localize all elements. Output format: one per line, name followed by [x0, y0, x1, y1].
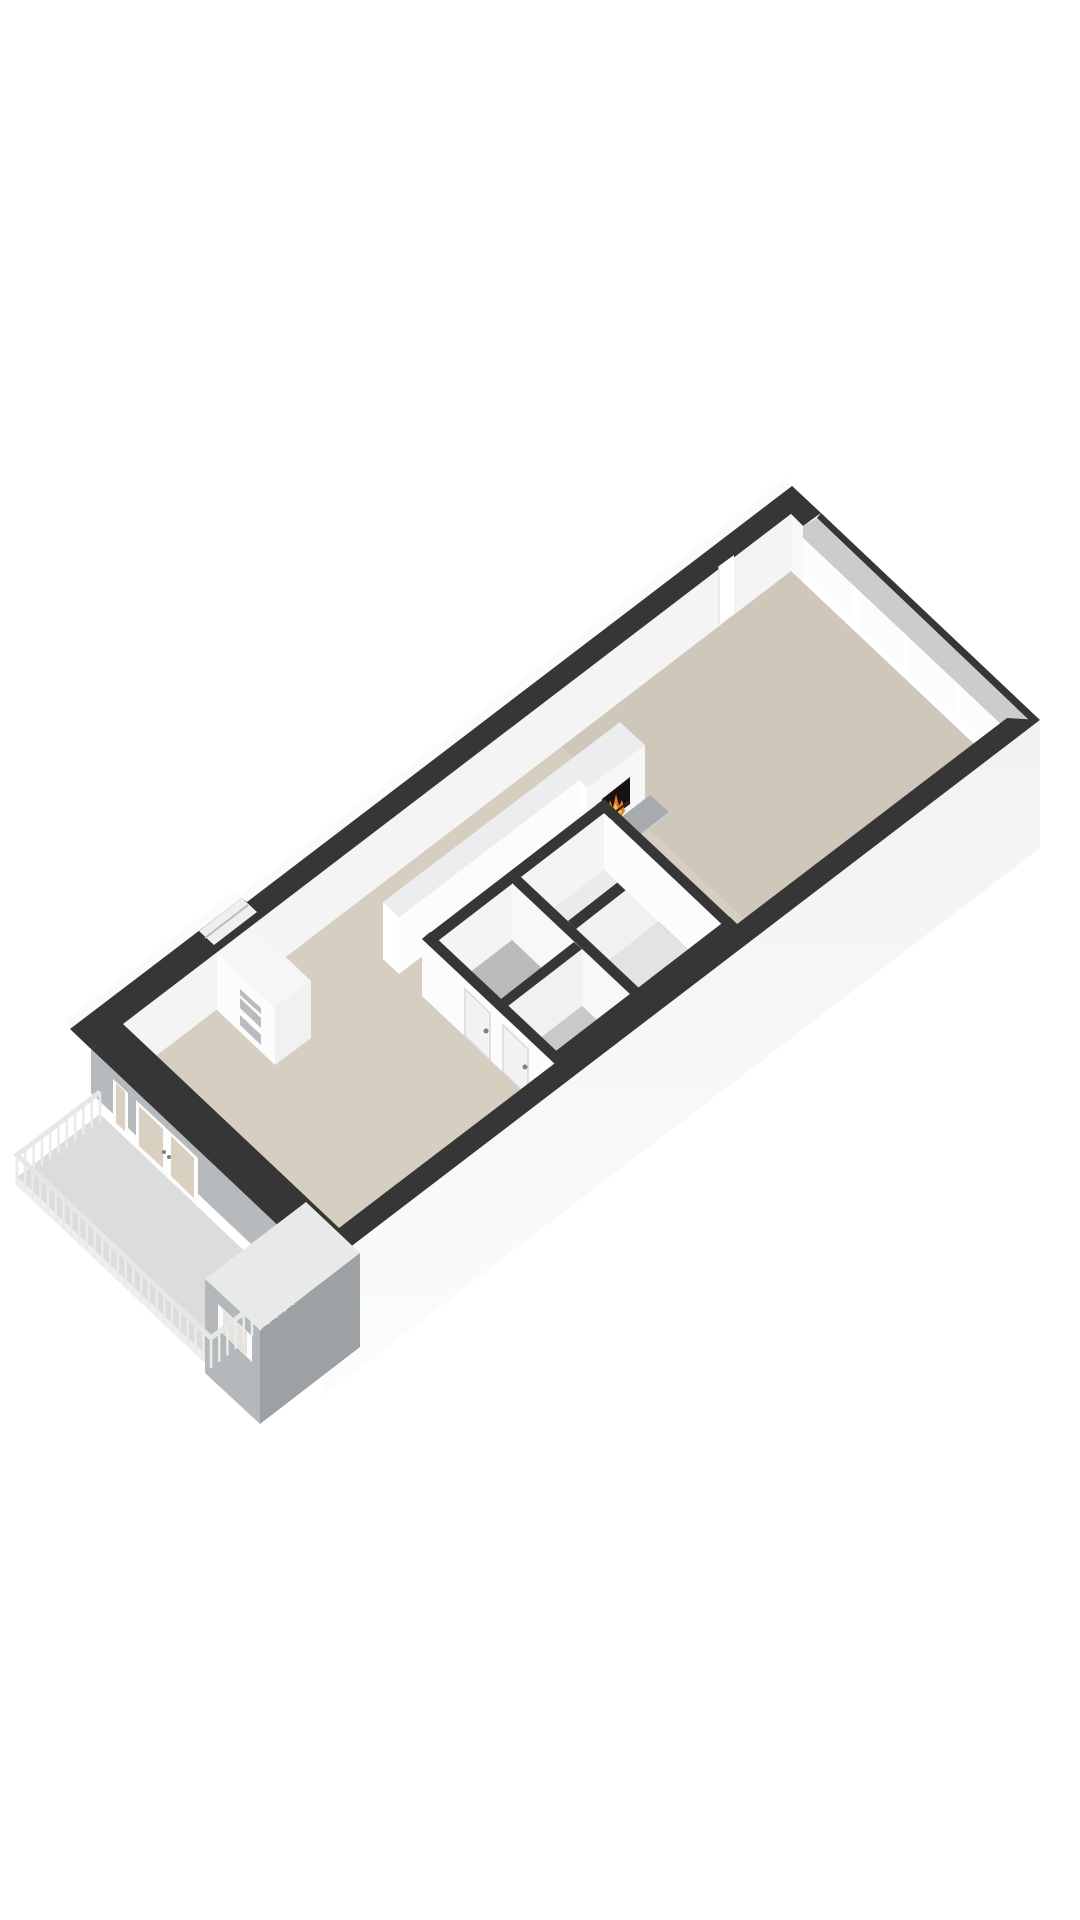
window-mullion: [853, 585, 858, 627]
nw-wall-pilaster: [719, 555, 734, 624]
bay-volume: [205, 1202, 360, 1424]
window-mullion: [955, 681, 960, 723]
door-handle: [484, 1029, 489, 1034]
french-door-handle: [167, 1155, 171, 1159]
floor-plan-canvas: [0, 0, 1080, 1920]
ne-wall-solid-face: [791, 514, 803, 583]
floor-plan-3d-render: [0, 0, 1080, 1920]
french-door-handle: [162, 1150, 166, 1154]
door-handle: [523, 1065, 528, 1070]
window-mullion: [904, 633, 909, 675]
